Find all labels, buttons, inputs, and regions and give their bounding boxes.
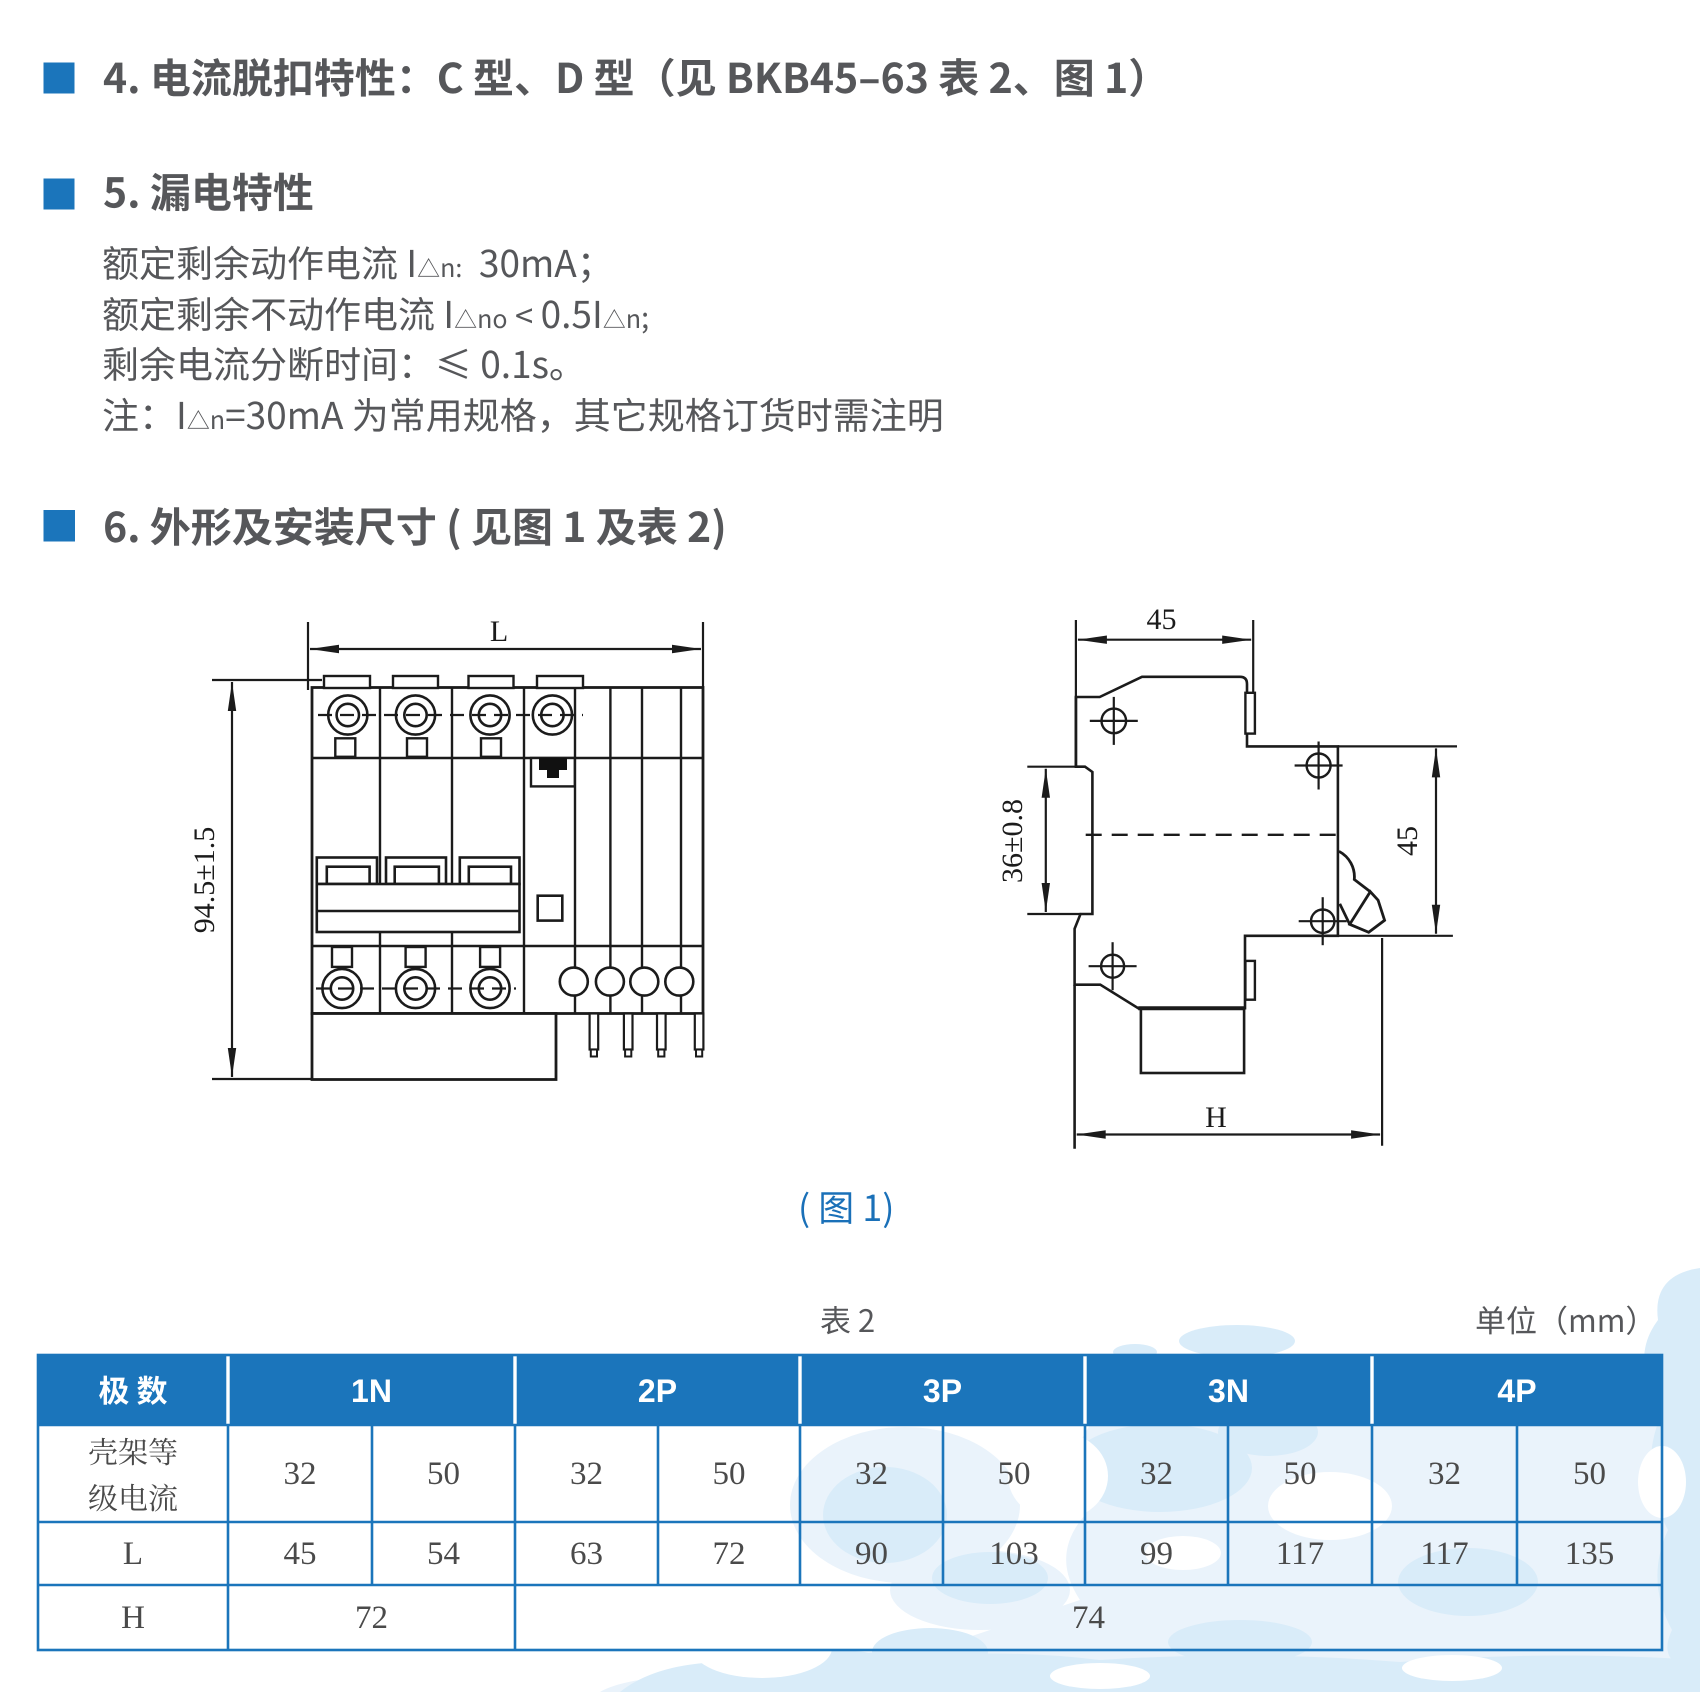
svg-text:63: 63 — [570, 1536, 603, 1572]
svg-text:36±0.8: 36±0.8 — [996, 799, 1029, 883]
svg-text:117: 117 — [1276, 1536, 1324, 1572]
svg-text:45: 45 — [1147, 603, 1177, 636]
svg-text:72: 72 — [713, 1536, 746, 1572]
svg-text:3P: 3P — [923, 1373, 962, 1409]
svg-text:135: 135 — [1565, 1536, 1615, 1572]
svg-text:2P: 2P — [638, 1373, 677, 1409]
svg-text:32: 32 — [1140, 1456, 1173, 1492]
svg-text:L: L — [490, 615, 508, 648]
svg-text:50: 50 — [713, 1456, 746, 1492]
svg-text:72: 72 — [355, 1600, 388, 1636]
svg-text:H: H — [1205, 1101, 1227, 1134]
svg-text:90: 90 — [855, 1536, 888, 1572]
svg-text:50: 50 — [1573, 1456, 1606, 1492]
svg-text:50: 50 — [998, 1456, 1031, 1492]
svg-text:32: 32 — [284, 1456, 317, 1492]
svg-text:45: 45 — [284, 1536, 317, 1572]
svg-text:4P: 4P — [1497, 1373, 1536, 1409]
svg-text:45: 45 — [1391, 826, 1424, 856]
svg-text:99: 99 — [1140, 1536, 1173, 1572]
svg-text:74: 74 — [1072, 1600, 1105, 1636]
svg-text:50: 50 — [1284, 1456, 1317, 1492]
svg-text:32: 32 — [570, 1456, 603, 1492]
svg-text:103: 103 — [989, 1536, 1039, 1572]
svg-text:32: 32 — [1428, 1456, 1461, 1492]
svg-text:32: 32 — [855, 1456, 888, 1492]
svg-text:50: 50 — [427, 1456, 460, 1492]
svg-text:L: L — [123, 1536, 143, 1572]
svg-text:94.5±1.5: 94.5±1.5 — [188, 827, 221, 933]
svg-text:3N: 3N — [1208, 1373, 1249, 1409]
svg-text:H: H — [121, 1600, 145, 1636]
svg-text:1N: 1N — [351, 1373, 392, 1409]
svg-text:117: 117 — [1420, 1536, 1468, 1572]
svg-text:54: 54 — [427, 1536, 460, 1572]
